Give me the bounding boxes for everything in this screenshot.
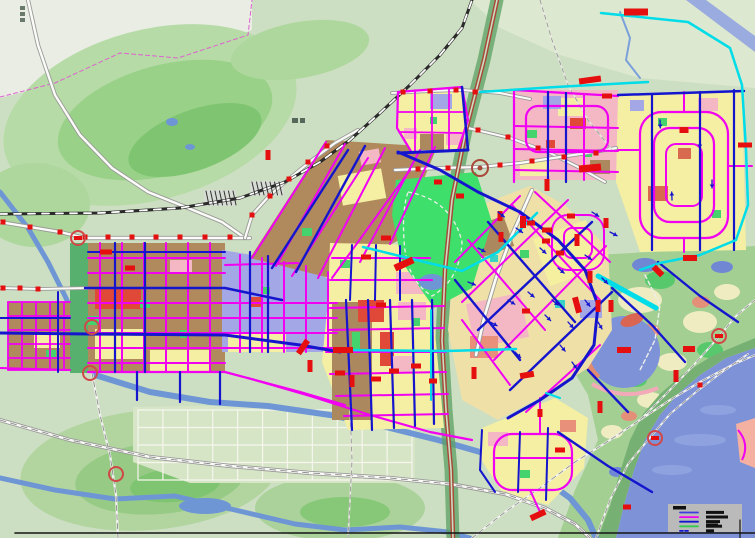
red-annotation-bar [456, 194, 464, 199]
red-annotation-bar [361, 255, 371, 260]
junction-marker [130, 235, 135, 240]
red-annotation-bar [567, 214, 575, 219]
junction-marker [498, 163, 503, 168]
junction-marker [1, 286, 6, 291]
map-viewport [0, 0, 755, 538]
red-annotation-bar [598, 401, 603, 413]
red-annotation-bar [683, 346, 695, 352]
block-green [352, 332, 360, 350]
red-annotation-bar [371, 377, 381, 382]
junction-marker [416, 167, 421, 172]
junction-marker [306, 160, 311, 165]
block-salmon [678, 148, 691, 159]
red-annotation-bar [527, 221, 535, 226]
junction-marker [58, 230, 63, 235]
map-canvas [0, 0, 755, 538]
wetland-pond [711, 261, 733, 273]
node-circle-label [74, 236, 82, 240]
block-lavender [630, 100, 644, 111]
junction-marker [401, 90, 406, 95]
red-annotation-bar [575, 234, 580, 246]
red-annotation-bar [602, 94, 612, 99]
red-annotation-bar [556, 251, 564, 256]
junction-marker [36, 287, 41, 292]
hill-south-ridge [300, 497, 390, 527]
lake-streak [700, 405, 736, 415]
road-label-marks [20, 18, 25, 22]
legend-title [673, 506, 686, 510]
district-northeast-yellow [616, 90, 746, 252]
red-annotation-bar [538, 409, 543, 417]
junction-marker [446, 166, 451, 171]
red-annotation-bar [429, 379, 437, 384]
red-annotation-bar [472, 367, 477, 379]
block-green [527, 130, 537, 138]
red-annotation-bar [350, 375, 355, 387]
red-annotation-bar [623, 505, 631, 510]
hill-label-marks [300, 118, 305, 123]
red-annotation-bar [266, 150, 271, 160]
junction-marker [476, 128, 481, 133]
red-annotation-bar [522, 309, 530, 314]
legend-label [706, 529, 714, 532]
junction-marker [154, 235, 159, 240]
red-annotation-bar [125, 266, 135, 271]
red-annotation-bar [389, 369, 399, 374]
red-annotation-bar [411, 364, 421, 369]
wetland-meadow [714, 284, 740, 300]
red-annotation-bar [609, 300, 614, 312]
junction-marker [506, 135, 511, 140]
block-pink [488, 432, 508, 446]
red-annotation-bar [680, 127, 689, 133]
block-green [302, 228, 312, 236]
junction-marker [698, 383, 703, 388]
red-annotation-bar [100, 250, 112, 255]
junction-marker [428, 89, 433, 94]
junction-marker [454, 88, 459, 93]
hill-label-marks [292, 118, 298, 123]
red-annotation-bar [381, 236, 391, 241]
block-red [95, 289, 141, 309]
road-magenta [399, 132, 462, 133]
road-label-marks [20, 12, 25, 16]
junction-marker [106, 235, 111, 240]
park-pond [419, 274, 445, 290]
red-annotation-bar [604, 218, 609, 228]
oxbow-pond [179, 498, 231, 514]
legend-label [706, 511, 724, 514]
red-annotation-bar [738, 143, 752, 148]
wetland-meadow [601, 425, 623, 439]
junction-marker [473, 90, 478, 95]
junction-marker [594, 151, 599, 156]
node-circle-label [715, 334, 723, 338]
wetland-meadow [657, 353, 687, 371]
mountain-pond [166, 118, 178, 126]
block-green [46, 350, 56, 358]
red-annotation-bar [674, 370, 679, 382]
red-annotation-bar [376, 303, 386, 308]
block-green [520, 470, 530, 478]
highway-interchange-dot [478, 166, 483, 171]
red-annotation-bar [499, 232, 504, 242]
junction-marker [250, 213, 255, 218]
road-existing [0, 288, 88, 289]
junction-marker [228, 235, 233, 240]
junction-marker [203, 235, 208, 240]
red-annotation-bar [596, 300, 601, 312]
junction-marker [287, 177, 292, 182]
red-annotation-bar [617, 347, 631, 353]
block-salmon [560, 420, 576, 432]
junction-marker [562, 155, 567, 160]
junction-marker [178, 235, 183, 240]
junction-marker [536, 146, 541, 151]
junction-marker [1, 220, 6, 225]
road-label-marks [20, 6, 25, 10]
red-annotation-bar [555, 448, 565, 453]
block-yellow [150, 350, 210, 372]
red-annotation-bar [434, 180, 442, 185]
red-annotation-bar [520, 216, 526, 228]
red-annotation-bar [624, 9, 648, 16]
lake-streak [674, 434, 726, 446]
red-annotation-bar [308, 360, 313, 372]
red-annotation-bar [542, 239, 550, 244]
block-green [520, 250, 529, 258]
legend [668, 504, 742, 532]
block-green [430, 117, 437, 124]
wetland-meadow [683, 311, 717, 333]
mountain-pond [185, 144, 195, 150]
junction-marker [530, 159, 535, 164]
junction-marker [325, 144, 330, 149]
red-annotation-bar [683, 255, 697, 261]
junction-marker [28, 225, 33, 230]
junction-marker [18, 286, 23, 291]
legend-label [706, 520, 720, 523]
road-blue [375, 245, 376, 300]
node-circle-label [651, 436, 659, 440]
red-annotation-bar [542, 228, 552, 233]
red-annotation-bar [333, 347, 353, 353]
red-annotation-bar [588, 271, 593, 283]
red-annotation-bar [545, 179, 550, 191]
legend-label [706, 516, 728, 519]
lake-streak [652, 465, 692, 475]
junction-marker [268, 194, 273, 199]
legend-label [706, 525, 722, 528]
greenbelt-strip [70, 243, 88, 373]
red-annotation-bar [335, 371, 345, 376]
